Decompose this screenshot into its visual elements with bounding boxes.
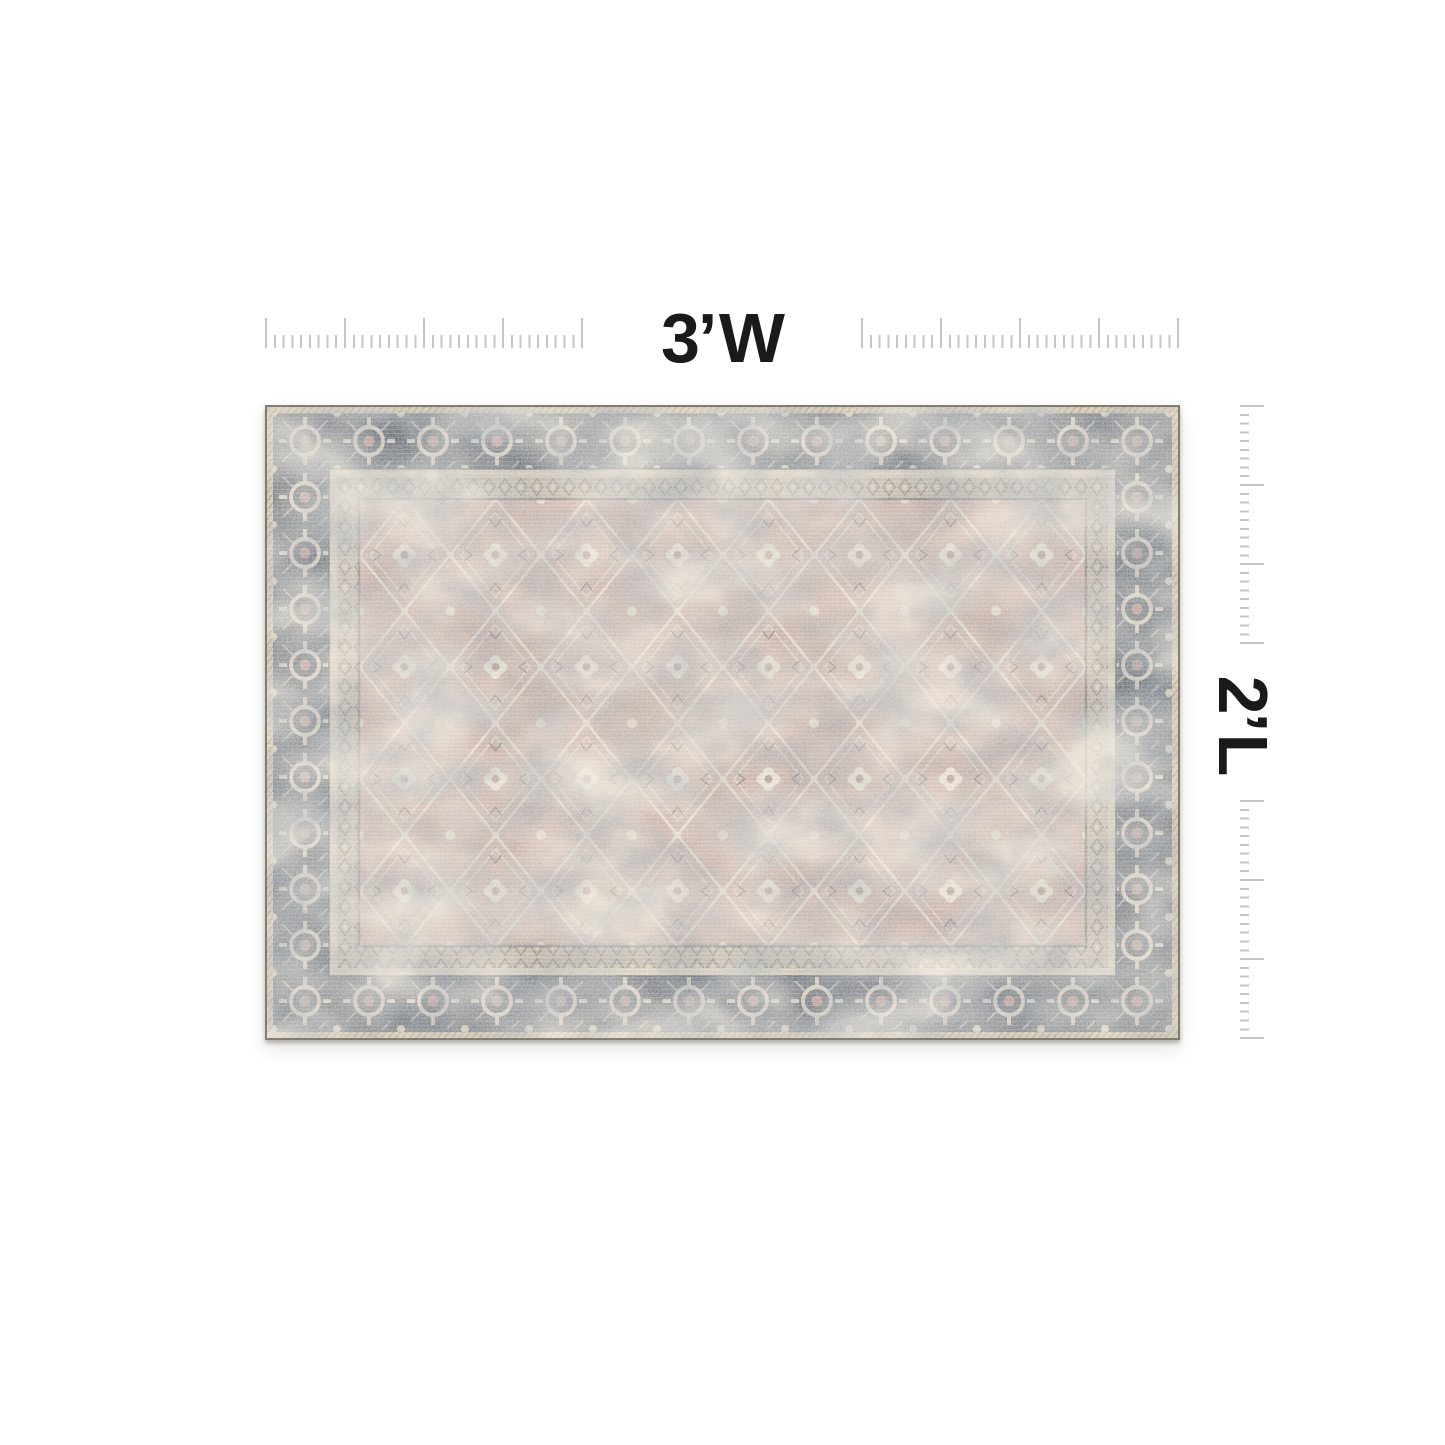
ruler-horizontal-left	[265, 318, 583, 348]
width-dimension-label: 3’ W	[583, 303, 861, 373]
rug-product-image	[265, 405, 1180, 1040]
rug-graphic	[265, 405, 1180, 1040]
ruler-vertical-bottom	[1240, 800, 1264, 1039]
product-dimension-diagram: 3’ W	[0, 0, 1445, 1445]
ruler-vertical-top	[1240, 405, 1264, 644]
length-dimension-label: 2’ L	[1208, 676, 1278, 775]
ruler-horizontal-right	[861, 318, 1179, 348]
